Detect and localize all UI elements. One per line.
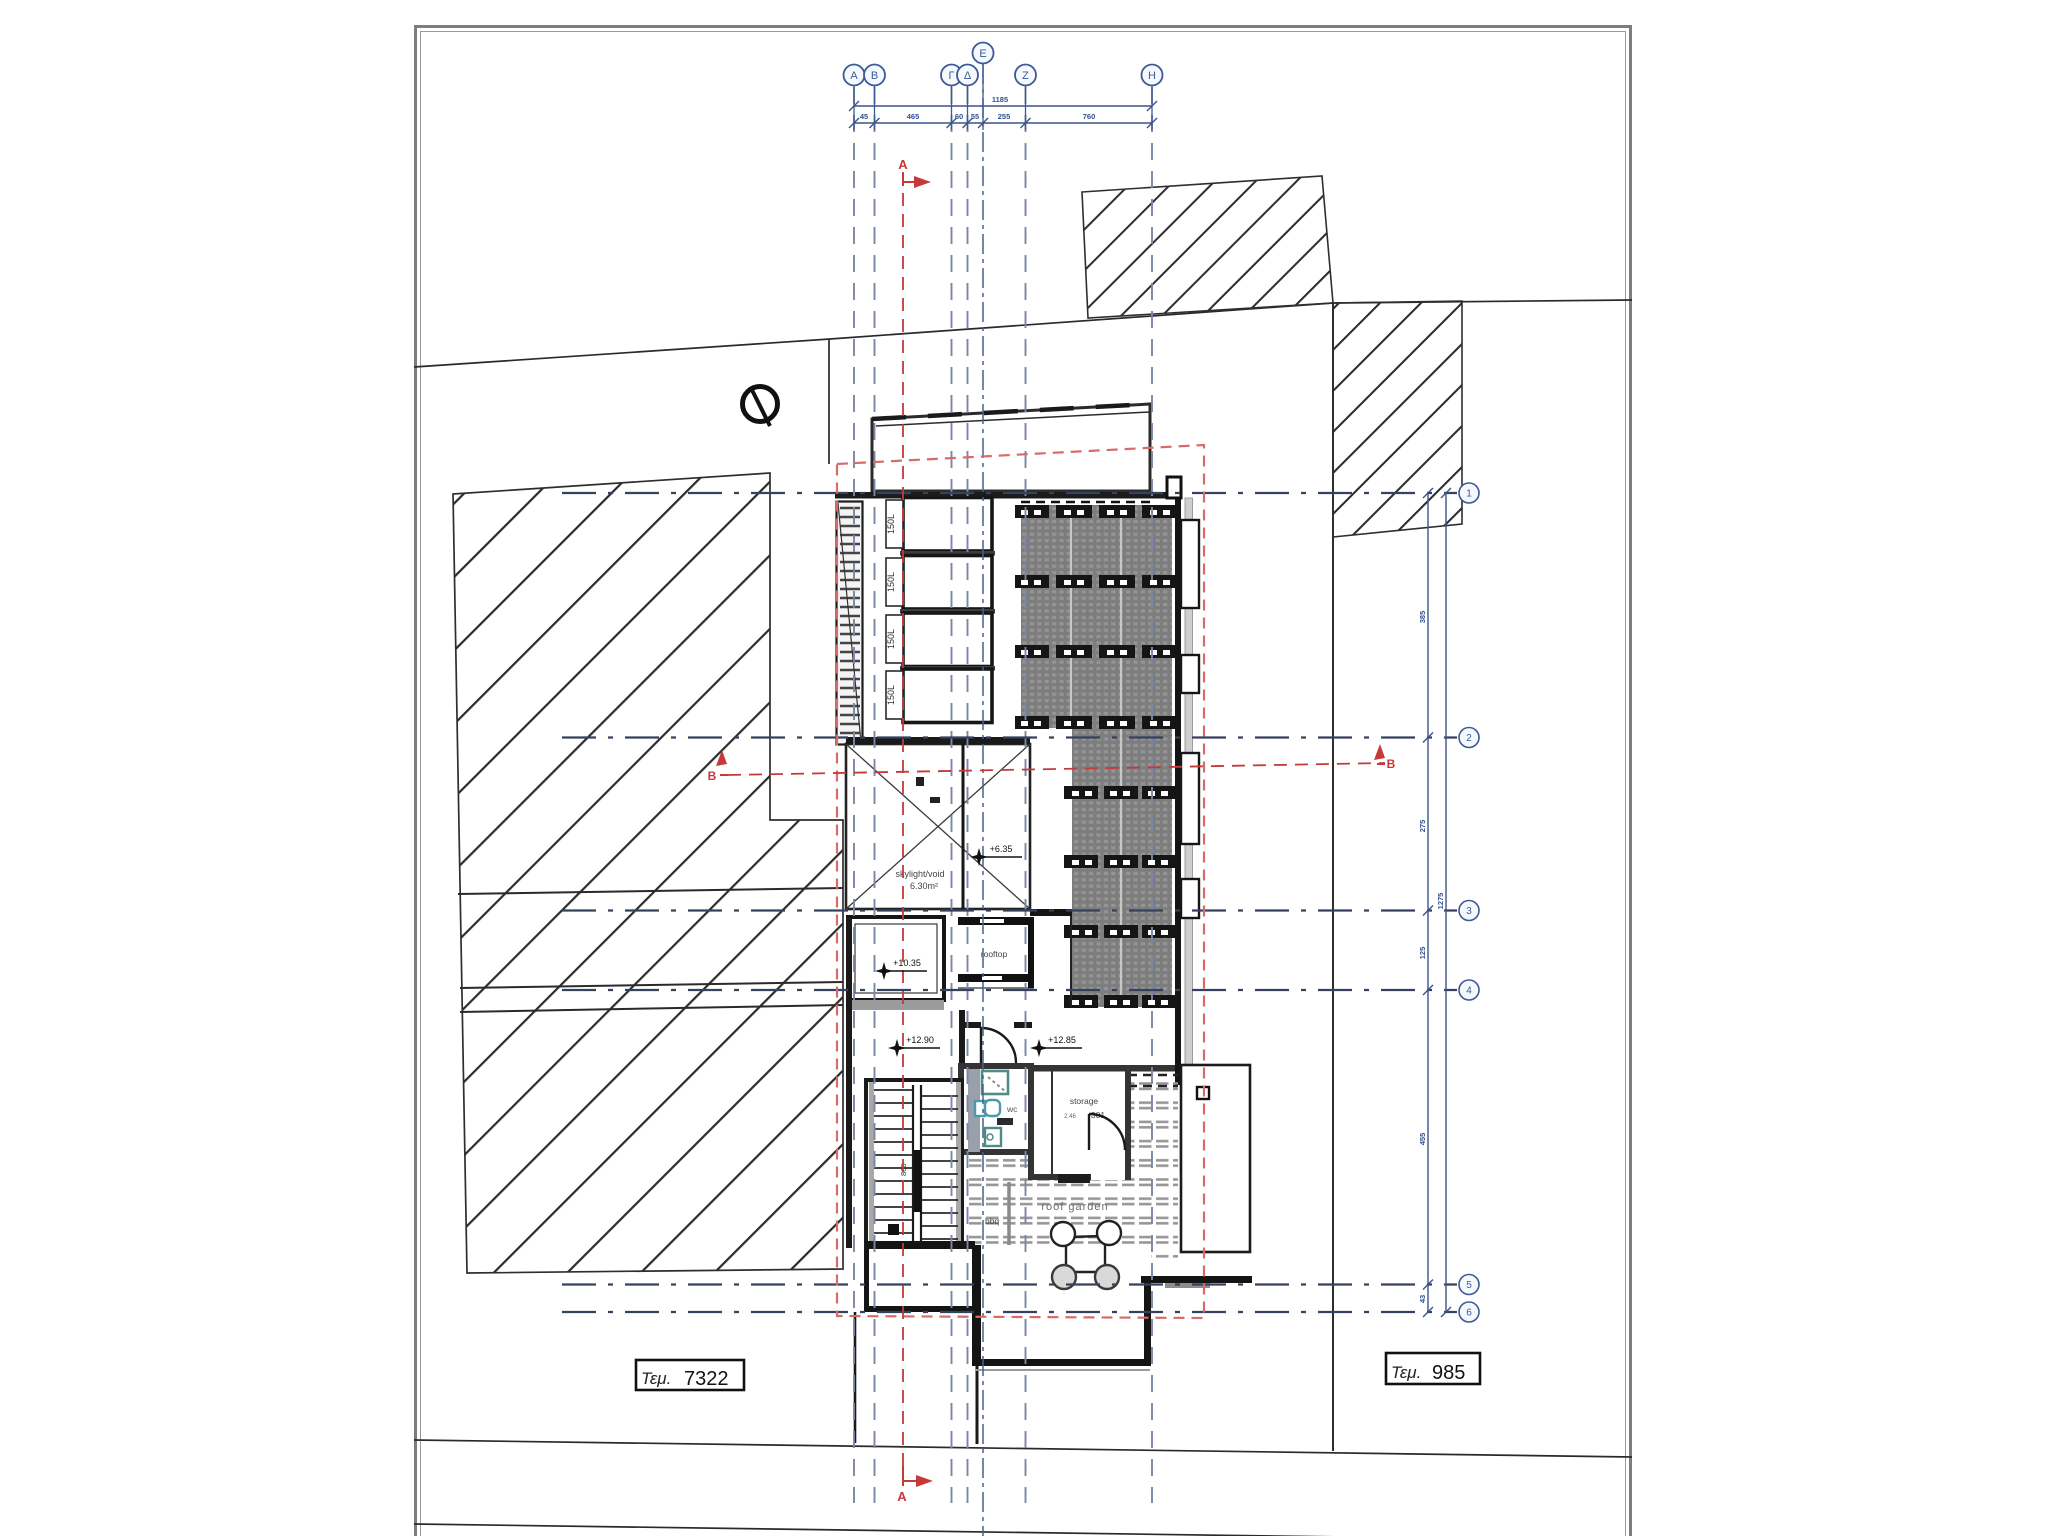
svg-text:A: A [850, 70, 858, 82]
svg-text:55: 55 [971, 112, 979, 121]
svg-text:H: H [1148, 70, 1156, 82]
svg-text:+12.90: +12.90 [906, 1035, 934, 1045]
svg-text:150L: 150L [886, 514, 896, 534]
svg-text:2: 2 [1466, 733, 1472, 744]
svg-text:5: 5 [1466, 1280, 1472, 1291]
svg-text:+6.35: +6.35 [990, 844, 1013, 854]
svg-text:43: 43 [1418, 1295, 1427, 1303]
svg-text:985: 985 [1432, 1362, 1465, 1384]
svg-text:A: A [897, 1489, 907, 1504]
svg-text:Z: Z [1022, 70, 1029, 82]
svg-text:6: 6 [1466, 1308, 1472, 1319]
svg-text:150L: 150L [886, 685, 896, 705]
svg-text:+10.35: +10.35 [893, 958, 921, 968]
svg-text:7322: 7322 [684, 1368, 729, 1390]
svg-text:3: 3 [1466, 906, 1472, 917]
svg-text:storage: storage [1070, 1096, 1099, 1106]
svg-text:wc: wc [1006, 1104, 1018, 1114]
svg-text:+12.85: +12.85 [1048, 1035, 1076, 1045]
svg-text:B: B [708, 769, 717, 783]
svg-text:B: B [871, 70, 878, 82]
svg-text:Τεμ.: Τεμ. [1391, 1363, 1421, 1382]
svg-text:45: 45 [860, 112, 868, 121]
svg-text:Τεμ.: Τεμ. [641, 1369, 671, 1388]
svg-text:B: B [1387, 757, 1396, 771]
svg-text:125: 125 [1418, 947, 1427, 960]
svg-text:1: 1 [1466, 489, 1472, 500]
svg-text:455: 455 [1418, 1133, 1427, 1146]
svg-text:1185: 1185 [992, 95, 1008, 104]
svg-text:60: 60 [955, 112, 963, 121]
svg-text:150L: 150L [886, 629, 896, 649]
svg-text:E: E [979, 48, 986, 60]
svg-text:A: A [898, 157, 908, 172]
svg-text:465: 465 [907, 112, 920, 121]
svg-text:150L: 150L [886, 572, 896, 592]
svg-text:bbq: bbq [985, 1216, 999, 1226]
svg-text:385: 385 [1418, 611, 1427, 624]
svg-text:6.30m²: 6.30m² [910, 881, 938, 891]
svg-text:Γ: Γ [948, 70, 954, 82]
svg-text:1275: 1275 [1436, 893, 1445, 910]
svg-text:275: 275 [1418, 820, 1427, 833]
svg-text:4: 4 [1466, 986, 1472, 997]
svg-text:2.46: 2.46 [1064, 1114, 1076, 1120]
svg-text:rooftop: rooftop [981, 949, 1008, 959]
svg-text:255: 255 [998, 112, 1011, 121]
svg-text:Δ: Δ [964, 70, 972, 82]
svg-text:roof garden: roof garden [1041, 1201, 1108, 1213]
svg-text:760: 760 [1083, 112, 1096, 121]
